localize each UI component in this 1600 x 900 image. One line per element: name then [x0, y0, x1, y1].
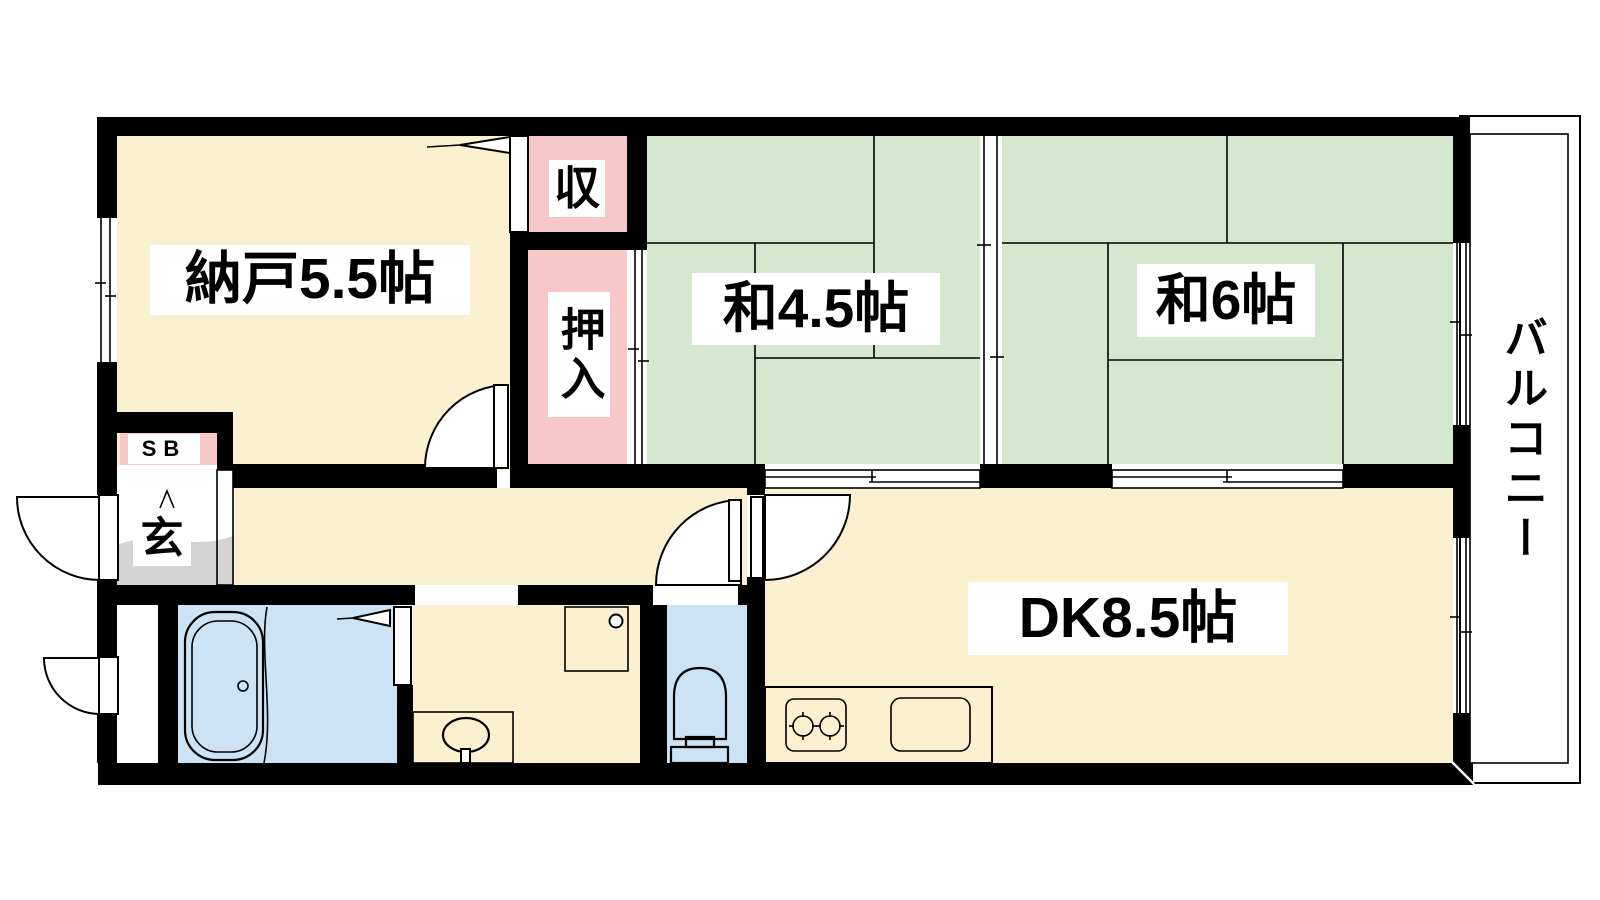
label-balcony: バルコニー — [1486, 258, 1556, 622]
label-washitsu-4-5: 和4.5帖 — [692, 273, 940, 345]
bath-side-strip — [118, 605, 158, 763]
sliding-door-washitsu45-dk — [765, 470, 980, 488]
fusuma-oshiire — [628, 250, 649, 464]
entrance-door — [17, 495, 118, 580]
washroom — [413, 605, 640, 763]
fusuma-between-washitsu — [977, 136, 1004, 464]
window-nando-left — [95, 218, 116, 362]
sliding-door-washitsu6-dk — [1112, 470, 1343, 488]
label-washitsu-6: 和6帖 — [1137, 264, 1315, 337]
bathroom — [178, 605, 397, 763]
floorplan-page: 納戸5.5帖 和4.5帖 和6帖 DK8.5帖 収 押入 SB 玄 バルコニー — [0, 0, 1600, 900]
label-nando: 納戸5.5帖 — [150, 245, 470, 315]
label-shoe-box: SB — [128, 434, 200, 464]
label-shuno-closet: 収 — [549, 160, 605, 217]
label-oshiire-closet: 押入 — [548, 292, 610, 417]
room-fills — [117, 136, 1453, 763]
label-dk: DK8.5帖 — [968, 582, 1288, 655]
label-genkan: 玄 — [133, 514, 191, 566]
service-door — [44, 657, 118, 714]
floorplan-drawing — [0, 0, 1600, 900]
